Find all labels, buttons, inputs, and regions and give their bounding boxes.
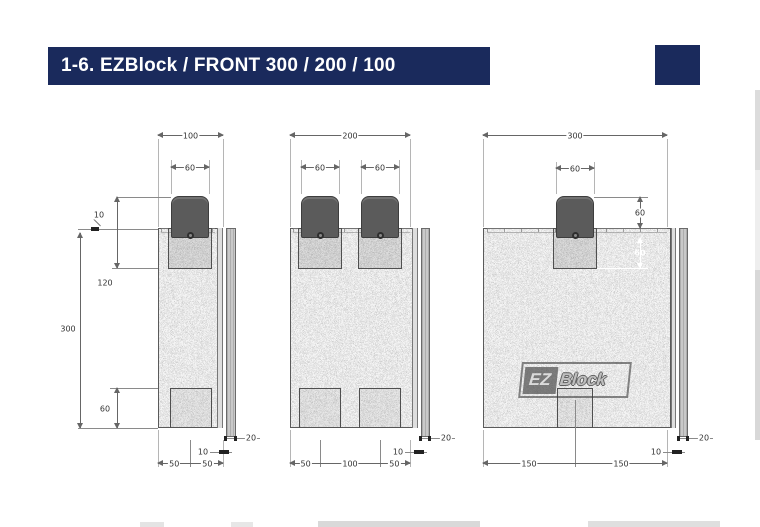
next-page-edge xyxy=(588,521,720,527)
ezblock-logo: EZ Block xyxy=(518,362,632,398)
dim-arrow xyxy=(428,436,431,441)
next-page-edge xyxy=(755,90,760,170)
dim-knob-height-label: 60 xyxy=(634,209,646,218)
knob-pin-hole xyxy=(572,232,579,239)
dim-top-lip-label: 10 xyxy=(93,211,105,220)
extension-line xyxy=(158,139,159,227)
knob-pin-hole xyxy=(317,232,324,239)
extension-line xyxy=(290,139,291,227)
dim-knob2-width: 60 xyxy=(361,167,399,168)
dim-knob-width: 60 xyxy=(556,168,594,169)
next-page-edge xyxy=(755,170,760,270)
next-page-edge xyxy=(140,522,164,527)
leader-line xyxy=(93,219,101,227)
dim-60-label: 60 xyxy=(99,405,111,414)
dim-solid-mark xyxy=(414,450,424,454)
dim-20-label: 20 xyxy=(698,434,710,443)
next-page-edge xyxy=(755,270,760,440)
page-title: 1-6. EZBlock / FRONT 300 / 200 / 100 xyxy=(61,55,396,77)
next-page-edge xyxy=(231,522,253,527)
extension-line xyxy=(223,139,224,227)
next-page-edge xyxy=(318,521,480,527)
side-panel-edge xyxy=(217,228,223,428)
dim-solid-mark xyxy=(672,450,682,454)
dim-knob1-width: 60 xyxy=(301,167,339,168)
bottom-socket-2 xyxy=(359,388,401,428)
dim-300-label: 300 xyxy=(59,325,76,334)
dim-overall-width: 300 xyxy=(483,135,667,136)
dim-20-label: 20 xyxy=(245,434,257,443)
dim-overall-width: 200 xyxy=(290,135,410,136)
dim-arrow xyxy=(234,436,237,441)
slide-page: 1-6. EZBlock / FRONT 300 / 200 / 100 100… xyxy=(0,0,760,527)
corner-decor-square xyxy=(655,45,700,85)
extension-line xyxy=(575,400,576,467)
side-panel-outer xyxy=(679,228,688,437)
dim-120-label: 120 xyxy=(96,279,113,288)
side-panel-outer xyxy=(421,228,430,437)
dim-tick xyxy=(91,227,99,231)
extension-line-white xyxy=(597,268,648,269)
dim-arrow xyxy=(224,436,227,441)
dim-knob-width: 60 xyxy=(171,167,209,168)
dim-arrow xyxy=(677,436,680,441)
extension-line xyxy=(483,139,484,227)
dim-10-label: 10 xyxy=(392,448,404,457)
dim-arrow xyxy=(686,436,689,441)
title-bar: 1-6. EZBlock / FRONT 300 / 200 / 100 xyxy=(48,47,490,85)
bottom-socket-1 xyxy=(299,388,341,428)
dim-bottom-recess xyxy=(117,388,118,428)
dim-arrow xyxy=(419,436,422,441)
side-panel-edge xyxy=(412,228,418,428)
logo-ez: EZ xyxy=(523,367,559,394)
extension-line xyxy=(78,229,158,230)
knob-pin-hole xyxy=(187,232,194,239)
side-panel-edge xyxy=(671,228,676,428)
extension-line xyxy=(410,139,411,227)
dim-10-label: 10 xyxy=(197,448,209,457)
dim-overall-width: 100 xyxy=(158,135,223,136)
dim-bottom-segments: 150 150 xyxy=(483,463,667,464)
dim-knob-to-socket xyxy=(117,197,118,268)
bottom-socket xyxy=(170,388,212,428)
knob-pin-hole xyxy=(377,232,384,239)
logo-block: Block xyxy=(559,370,607,390)
dim-10-label: 10 xyxy=(650,448,662,457)
dim-overall-height xyxy=(80,233,81,428)
side-panel-outer xyxy=(226,228,236,437)
extension-line xyxy=(667,139,668,227)
dim-socket-depth-label: 60 xyxy=(633,249,646,258)
dim-solid-mark xyxy=(219,450,229,454)
extension-line xyxy=(117,197,171,198)
extension-line xyxy=(78,428,158,429)
dim-20-label: 20 xyxy=(440,434,452,443)
dim-bottom-segments: 50 50 xyxy=(158,463,223,464)
dim-bottom-segments: 50 100 50 xyxy=(290,463,410,464)
